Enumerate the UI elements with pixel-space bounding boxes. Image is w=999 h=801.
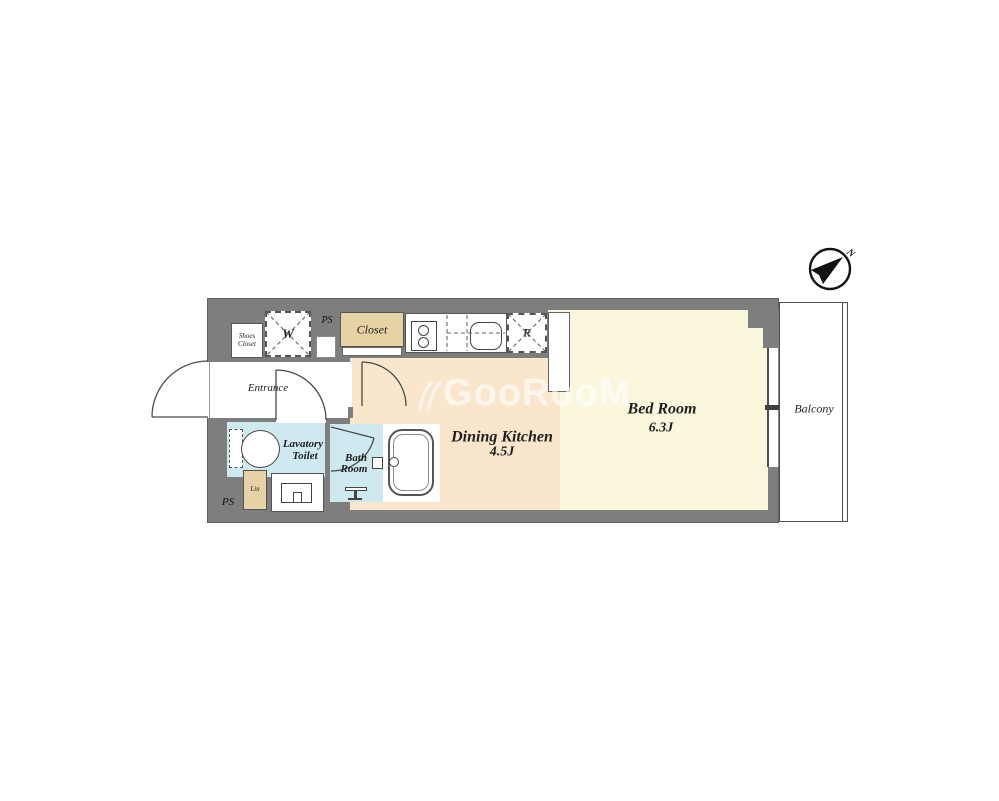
balcony-rail-inner-line (842, 303, 843, 521)
corner-pillar-step1 (748, 310, 779, 328)
balcony-label: Balcony (794, 403, 833, 416)
lavatory-toilet-label-line1: Lavatory (283, 439, 323, 451)
lavatory-door-opening (276, 418, 326, 423)
bed-room-label: Bed Room (628, 402, 697, 419)
compass-north-icon (800, 240, 870, 300)
floor-plan: Shoes Closet W PS Closet R Lin PS Balcon… (0, 0, 999, 801)
kitchen-sink (470, 322, 502, 350)
stove-burner-top (418, 325, 429, 336)
washing-machine-label: W (282, 327, 294, 341)
shower-drain-base (348, 498, 362, 500)
bath-faucet-box (372, 457, 383, 469)
dining-kitchen-size: 4.5J (490, 446, 515, 461)
pipe-space-bottom-label: PS (222, 497, 234, 509)
bed-room-size: 6.3J (649, 422, 674, 437)
linen-box: Lin (243, 470, 267, 510)
shoes-closet-label-line2: Closet (238, 341, 256, 349)
bathtub-drain (389, 457, 399, 467)
kitchen-bedroom-partition (548, 312, 570, 392)
entrance-label: Entrance (248, 383, 288, 395)
closet-label: Closet (357, 324, 388, 337)
entrance-threshold-line (209, 362, 210, 418)
toilet-bowl (241, 430, 280, 468)
pipe-space-top-label: PS (321, 316, 332, 327)
lavatory-toilet-label-line2: Toilet (292, 451, 317, 463)
vanity-faucet (293, 492, 302, 503)
pipe-space-top-box (316, 336, 336, 358)
bath-room-label-line2: Room (341, 464, 368, 476)
closet-sliding-door (342, 347, 402, 356)
refrigerator-label: R (523, 327, 531, 340)
stove-burner-bottom (418, 337, 429, 348)
shoes-closet-box: Shoes Closet (231, 323, 263, 358)
corridor-dk-wall-stub (348, 407, 353, 418)
linen-label: Lin (250, 486, 259, 494)
corner-pillar-step2 (763, 328, 779, 348)
